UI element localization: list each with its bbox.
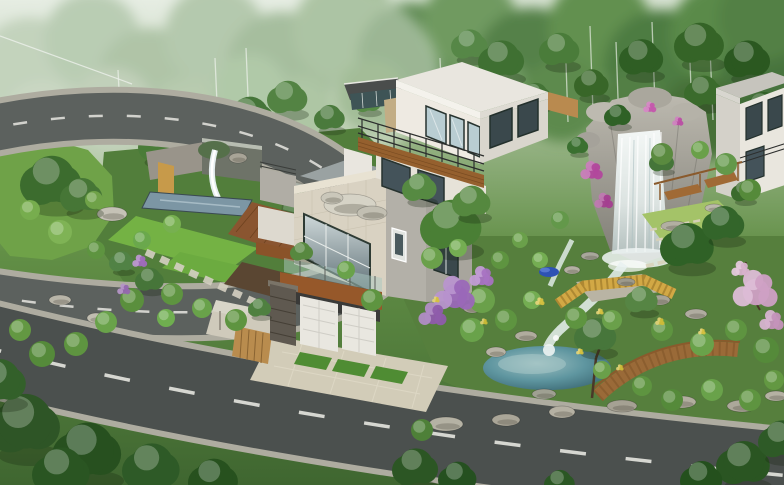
bush (192, 298, 212, 318)
bush (651, 143, 673, 165)
bush (661, 389, 683, 411)
bush (460, 318, 484, 342)
right-building-window (768, 95, 782, 131)
small-window-glass (395, 233, 403, 256)
bush (449, 239, 467, 257)
bush (29, 341, 55, 367)
rock (765, 391, 784, 401)
bush (87, 241, 105, 259)
bush (421, 247, 443, 269)
right-building-window (746, 102, 762, 140)
bush (9, 319, 31, 341)
bush (512, 232, 528, 248)
rock (492, 414, 520, 426)
window-dark (518, 99, 538, 137)
pond-reflection (498, 354, 566, 374)
rock (532, 389, 556, 399)
bush (632, 376, 652, 396)
blue-tarp-highlight (540, 268, 550, 273)
garden-trellis-gold (158, 162, 174, 196)
rock (564, 266, 580, 274)
bush (411, 419, 433, 441)
rock (515, 331, 537, 341)
bush (157, 309, 175, 327)
bush (85, 191, 103, 209)
rock (685, 309, 707, 319)
bush (161, 283, 183, 305)
rock (229, 153, 247, 163)
bush (20, 200, 40, 220)
bush (739, 179, 761, 201)
bush (701, 379, 723, 401)
rock (429, 417, 463, 431)
bush (739, 389, 761, 411)
bush (64, 332, 88, 356)
bush (532, 252, 548, 268)
bush (133, 231, 151, 249)
bush (602, 310, 622, 330)
bush (691, 141, 709, 159)
rock (581, 252, 599, 260)
bush (753, 337, 779, 363)
bush (361, 289, 383, 311)
villa-rendering (0, 0, 784, 485)
bush (337, 261, 355, 279)
bush (565, 307, 587, 329)
bush (48, 220, 72, 244)
stream-glint (553, 335, 559, 341)
bush (225, 309, 247, 331)
rock (617, 278, 635, 286)
rock (607, 400, 637, 412)
bush (715, 153, 737, 175)
rock (357, 206, 387, 220)
bush (764, 370, 784, 390)
pond-inflow-foam (543, 344, 555, 356)
bush (95, 311, 117, 333)
bush (163, 215, 181, 233)
rock (321, 192, 343, 204)
rock (486, 347, 506, 357)
bush (495, 309, 517, 331)
bush (551, 211, 569, 229)
rock (549, 406, 575, 418)
rock (49, 295, 71, 305)
bush (593, 361, 611, 379)
bush (725, 319, 747, 341)
bush (491, 251, 509, 269)
bush (690, 332, 714, 356)
